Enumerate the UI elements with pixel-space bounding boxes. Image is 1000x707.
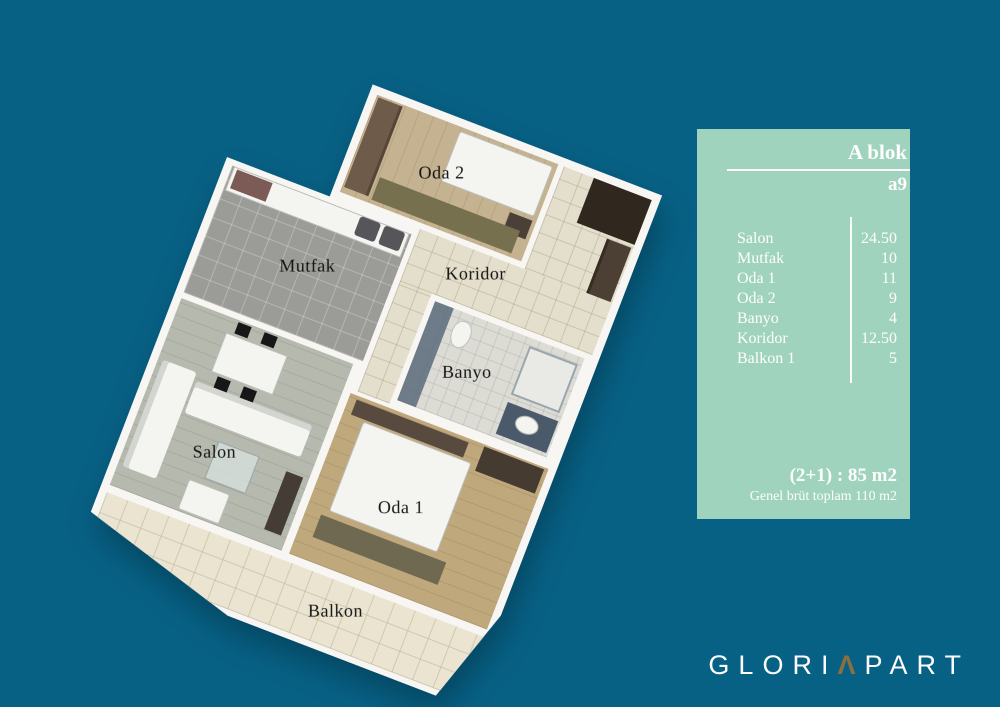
info-panel: A blok a9 Salon 24.50 Mutfak 10 Oda 1 11…	[697, 129, 910, 519]
room-name: Oda 1	[737, 269, 849, 289]
floorplan: Salon Mutfak Koridor Banyo Oda 1 Oda 2 B…	[69, 45, 662, 707]
summary-area: (2+1) : 85 m2	[750, 465, 897, 487]
toilet	[447, 318, 476, 351]
oda2-closet	[344, 97, 403, 196]
table-row: Oda 1 11	[737, 269, 897, 289]
room-area: 9	[849, 289, 897, 309]
table-row: Oda 2 9	[737, 289, 897, 309]
room-area-table: Salon 24.50 Mutfak 10 Oda 1 11 Oda 2 9 B…	[737, 229, 897, 369]
block-title: A blok	[697, 140, 910, 165]
room-name: Oda 2	[737, 289, 849, 309]
summary-block: (2+1) : 85 m2 Genel brüt toplam 110 m2	[750, 465, 897, 505]
page-background: Salon Mutfak Koridor Banyo Oda 1 Oda 2 B…	[0, 0, 1000, 707]
logo-suffix: PART	[864, 650, 970, 680]
floorplan-walls	[69, 45, 662, 707]
label-oda2: Oda 2	[419, 162, 465, 183]
room-name: Mutfak	[737, 249, 849, 269]
room-area: 24.50	[849, 229, 897, 249]
label-mutfak: Mutfak	[279, 256, 335, 277]
shower	[511, 346, 578, 413]
table-row: Mutfak 10	[737, 249, 897, 269]
logo-caret-icon: Λ	[837, 650, 864, 680]
title-divider	[727, 169, 910, 171]
label-balkon: Balkon	[308, 601, 363, 622]
oda1-closet	[475, 446, 544, 493]
entry-corner-closet	[577, 178, 652, 245]
unit-number: a9	[697, 174, 910, 196]
logo-prefix: GLORI	[708, 650, 837, 680]
room-area: 4	[849, 309, 897, 329]
table-row: Balkon 1 5	[737, 349, 897, 369]
room-name: Balkon 1	[737, 349, 849, 369]
tv-console	[264, 471, 303, 535]
summary-gross-area: Genel brüt toplam 110 m2	[750, 489, 897, 505]
room-name: Salon	[737, 229, 849, 249]
armchair	[178, 479, 231, 525]
label-oda1: Oda 1	[378, 497, 424, 518]
gloriapart-logo: GLORIΛPART	[708, 650, 970, 681]
label-banyo: Banyo	[442, 362, 492, 383]
sofa-chaise	[122, 360, 196, 479]
room-name: Banyo	[737, 309, 849, 329]
label-koridor: Koridor	[445, 263, 506, 284]
room-area: 12.50	[849, 329, 897, 349]
room-area: 5	[849, 349, 897, 369]
room-area: 10	[849, 249, 897, 269]
table-row: Koridor 12.50	[737, 329, 897, 349]
label-salon: Salon	[193, 442, 237, 463]
table-row: Salon 24.50	[737, 229, 897, 249]
room-name: Koridor	[737, 329, 849, 349]
table-row: Banyo 4	[737, 309, 897, 329]
room-area: 11	[849, 269, 897, 289]
